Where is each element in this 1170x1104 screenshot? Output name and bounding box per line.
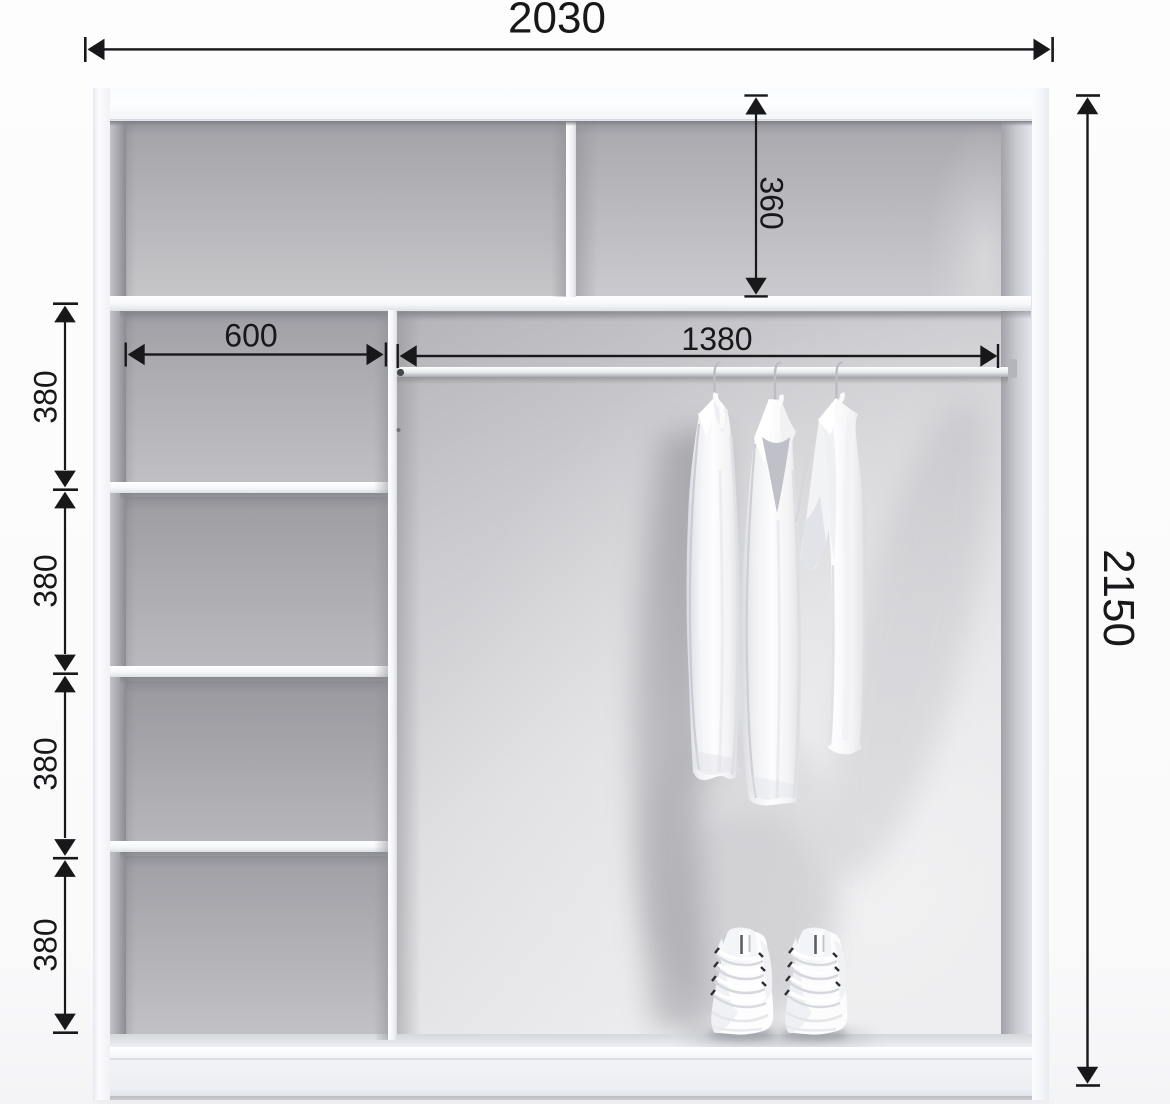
svg-text:2150: 2150	[1094, 549, 1143, 647]
svg-text:2030: 2030	[508, 0, 606, 43]
svg-text:600: 600	[224, 318, 277, 354]
svg-text:380: 380	[28, 554, 64, 607]
svg-text:380: 380	[28, 737, 64, 790]
svg-text:1380: 1380	[681, 321, 752, 357]
svg-text:380: 380	[28, 918, 64, 971]
svg-text:380: 380	[28, 370, 64, 423]
svg-text:360: 360	[754, 176, 790, 229]
